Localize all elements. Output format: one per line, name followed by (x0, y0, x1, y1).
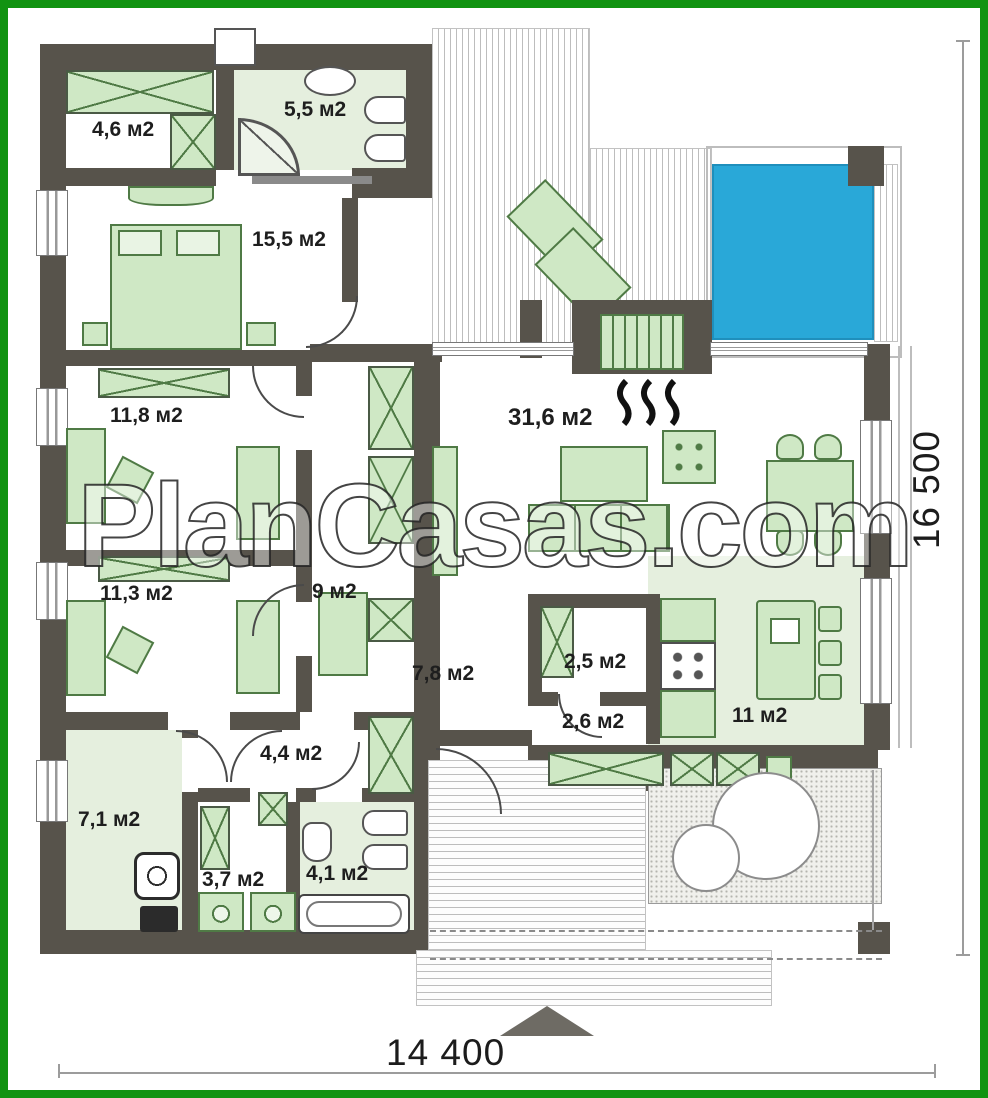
room-label-corr44: 4,4 м2 (260, 742, 322, 766)
desk-chair-icon (106, 626, 155, 675)
wall-wardrobe-bedroom (66, 168, 216, 186)
height-dimension-tick (956, 40, 970, 42)
room-label-hall: 7,8 м2 (412, 662, 474, 686)
wardrobe-closet-icon (170, 114, 216, 170)
bathtub-basin (306, 901, 402, 927)
pergola-column (858, 922, 890, 954)
washing-machine-icon (198, 892, 244, 932)
room113-window (36, 562, 68, 620)
paving-dash-line (430, 930, 882, 932)
toilet-icon (302, 822, 332, 862)
utility-window (36, 760, 68, 822)
dining-chair-icon (814, 530, 842, 556)
roof-overhang-line (898, 346, 900, 748)
kitchen-island-icon (756, 600, 816, 700)
chimney-icon (214, 28, 256, 66)
island-sink-icon (770, 618, 800, 644)
wall-east-mid (864, 532, 890, 580)
desk-icon (66, 600, 106, 696)
nightstand-icon (246, 322, 276, 346)
width-dimension-tick (934, 1064, 936, 1078)
pantry-wall-bottom (528, 692, 558, 706)
bench-icon (128, 186, 214, 206)
dining-table-icon (766, 460, 854, 532)
living-glazing-west (432, 342, 574, 356)
fireplace-icon (600, 314, 684, 370)
room-label-corr26: 2,6 м2 (562, 710, 624, 734)
room-label-pantry: 2,5 м2 (564, 650, 626, 674)
tv-cabinet-icon (432, 446, 458, 576)
room-label-wardrobe: 4,6 м2 (92, 118, 154, 142)
dining-chair-icon (814, 434, 842, 460)
height-dimension-label: 16 500 (906, 430, 948, 549)
door-gap (168, 712, 230, 730)
hall-closet-icon (368, 716, 414, 794)
stool-icon (818, 674, 842, 700)
pergola-edge-line (872, 770, 874, 930)
boiler-icon (134, 852, 180, 900)
door-gap (316, 788, 362, 802)
sofa-icon (528, 504, 670, 552)
wardrobe-closet-icon (66, 70, 214, 114)
door-arc (306, 296, 358, 348)
desk-chair-icon (106, 456, 155, 505)
room-label-bath-top: 5,5 м2 (284, 98, 346, 122)
pantry-wall-right (646, 594, 660, 744)
wall-room118-north (66, 350, 312, 366)
north-arrow-icon (500, 1006, 594, 1036)
dresser-icon (98, 368, 230, 398)
bedroom-window (36, 190, 68, 256)
door-arc (252, 366, 304, 418)
toilet-icon (364, 96, 406, 124)
room-label-bedroom: 15,5 м2 (252, 228, 326, 252)
sink-icon (304, 66, 356, 96)
kitchen-counter-icon (660, 598, 716, 642)
hall-closet-icon (368, 456, 414, 544)
desk-icon (66, 428, 106, 524)
hall-closet-icon (368, 598, 414, 642)
room-label-laundry: 3,7 м2 (202, 868, 264, 892)
width-dimension-tick (58, 1064, 60, 1078)
dining-window (860, 420, 892, 534)
wall-east-lower (864, 702, 890, 750)
corridor-closet-icon (258, 792, 288, 826)
bathtub-icon (298, 894, 410, 934)
height-dimension-line (962, 40, 964, 956)
room-label-11-3: 11,3 м2 (100, 582, 173, 606)
dining-chair-icon (776, 434, 804, 460)
paving-dash-line (430, 958, 882, 960)
room-label-utility: 7,1 м2 (78, 808, 140, 832)
laundry-shelf-icon (200, 806, 230, 870)
dresser-icon (98, 556, 230, 582)
hall-closet-icon (368, 366, 414, 450)
sink-icon (362, 844, 408, 870)
door-gap (300, 712, 354, 730)
sink-icon (362, 810, 408, 836)
height-dimension-tick (956, 954, 970, 956)
wall-room9-hall (414, 560, 440, 712)
pillow-icon (118, 230, 162, 256)
wall-center-vertical-2 (296, 450, 312, 602)
door-arc (176, 730, 228, 782)
coffee-table-icon (560, 446, 648, 502)
wall-wardrobe-bath (216, 70, 234, 170)
sofa-icon (318, 592, 368, 676)
room-label-9: 9 м2 (312, 580, 357, 604)
room-label-11-8: 11,8 м2 (110, 404, 183, 428)
south-cabinet-icon (548, 752, 664, 786)
kitchen-window (860, 578, 892, 704)
living-glazing-east (710, 342, 868, 356)
stove-icon (660, 642, 716, 690)
dining-chair-icon (776, 530, 804, 556)
heat-waves-icon (616, 378, 688, 428)
tree-icon (672, 824, 740, 892)
width-dimension-label: 14 400 (386, 1032, 505, 1074)
pool-corner-pier (848, 146, 884, 186)
bidet-icon (364, 134, 406, 162)
front-door-arc (436, 748, 502, 814)
room-label-living: 31,6 м2 (508, 404, 592, 432)
pool (712, 164, 874, 340)
nightstand-icon (82, 322, 108, 346)
stool-icon (818, 640, 842, 666)
pillow-icon (176, 230, 220, 256)
water-heater-icon (140, 906, 178, 932)
room118-window (36, 388, 68, 446)
floor-plan: 4,6 м2 5,5 м2 15,5 м2 11,8 м2 11,3 м2 9 … (0, 0, 988, 1098)
kitchen-counter-icon (660, 690, 716, 738)
armchair-icon (662, 430, 716, 484)
wall-bedroom-hall (342, 198, 358, 302)
washing-machine-icon (250, 892, 296, 932)
sliding-door-bedroom (252, 176, 372, 184)
room-label-bath-bottom: 4,1 м2 (306, 862, 368, 886)
wall-hall-south (440, 730, 532, 746)
south-cabinet-icon (670, 752, 714, 786)
room-label-kitchen: 11 м2 (732, 704, 787, 728)
stool-icon (818, 606, 842, 632)
door-arc (252, 584, 304, 636)
sofa-icon (236, 446, 280, 540)
